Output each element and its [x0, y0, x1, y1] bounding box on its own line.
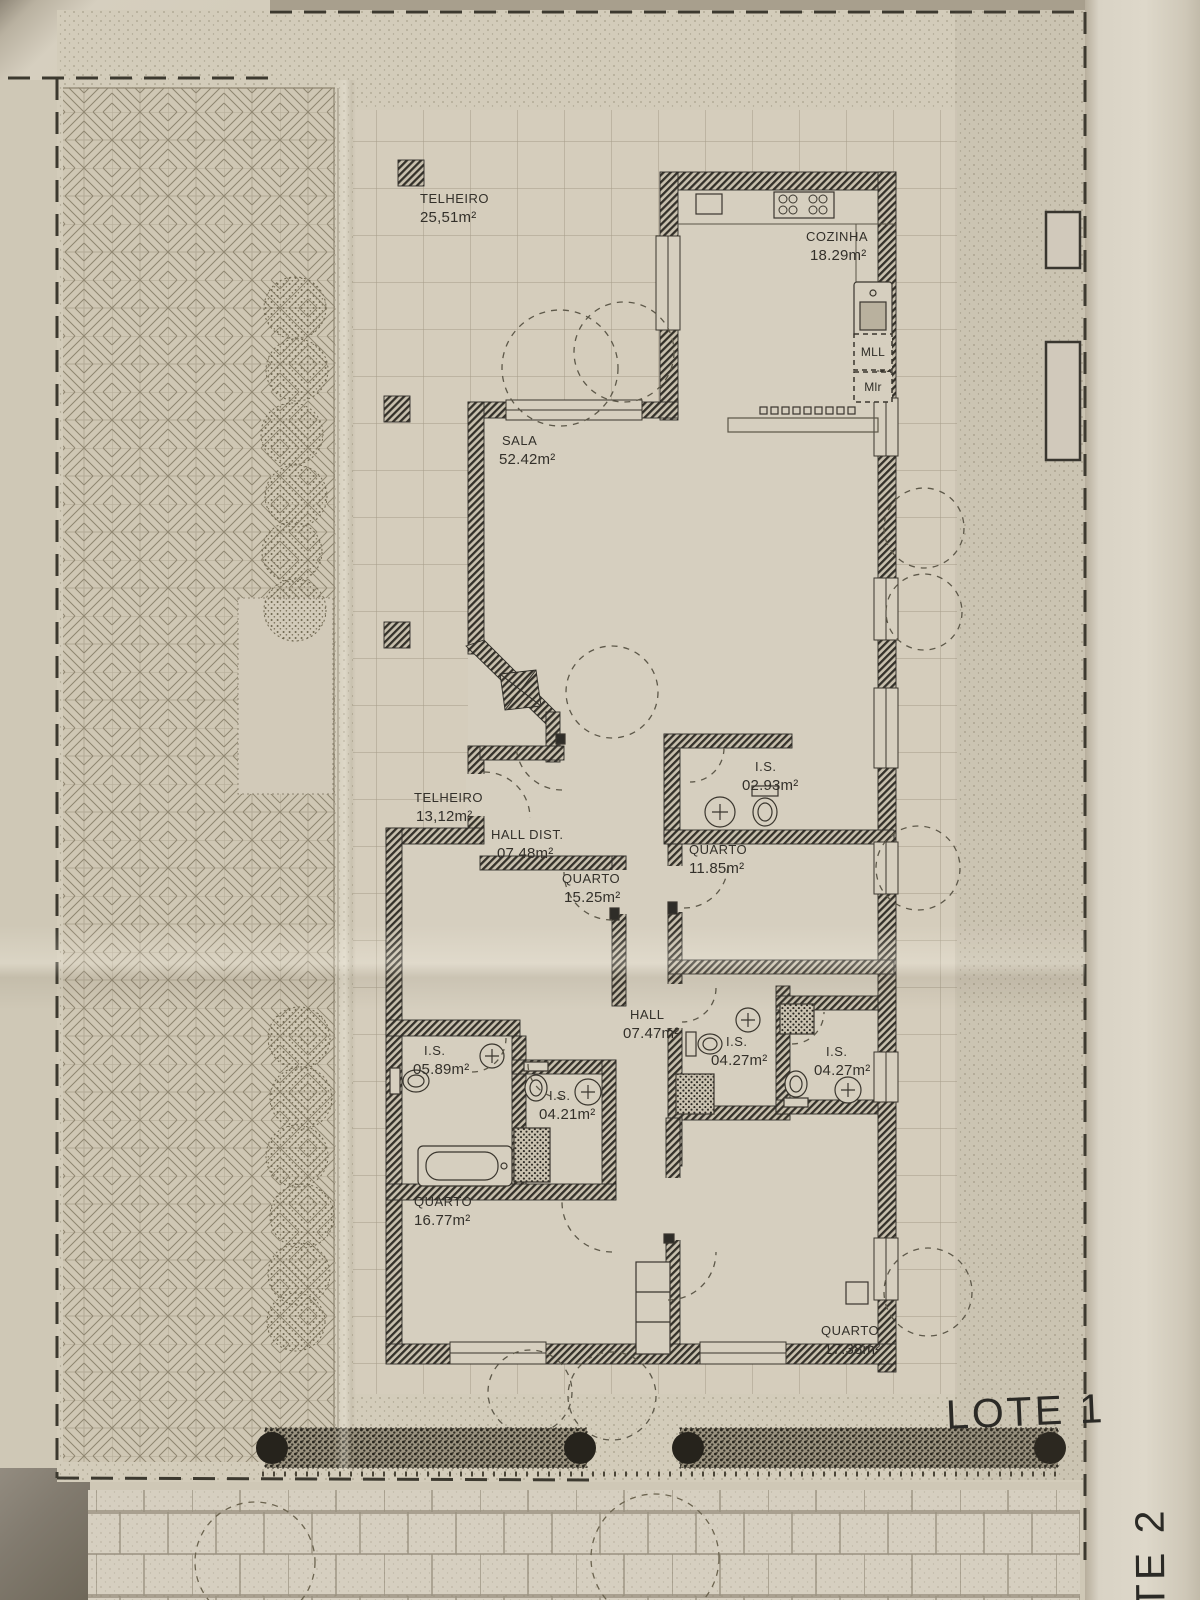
oven-icon: [696, 194, 722, 214]
neighbour-walls: [1046, 212, 1080, 460]
ground-layer: [57, 10, 1085, 1482]
toilet-icon: [524, 1062, 548, 1071]
room-label-sala: SALA 52.42m²: [499, 431, 555, 469]
hedges-layer: [256, 1428, 1066, 1474]
paper-fold-horizontal: [0, 925, 1085, 1010]
hob-icon: [774, 192, 834, 218]
room-label-quarto-1738: QUARTO 17.38m²: [821, 1321, 880, 1359]
room-label-is-0421: I.S. 04.21m²: [539, 1086, 595, 1124]
toilet-icon: [686, 1032, 696, 1056]
kitchen-sink-icon: [854, 282, 892, 336]
shower-icon: [676, 1074, 714, 1114]
walls-layer: [384, 160, 896, 1372]
washbasin-icon: [705, 797, 735, 827]
washbasin-icon: [480, 1044, 504, 1068]
pavement-layer: [88, 1490, 1080, 1600]
cabinet-dots-row: [760, 407, 855, 414]
trees-layer: [261, 277, 334, 1351]
lot2-label: LOTE 2: [1126, 1432, 1175, 1600]
room-label-is-0589: I.S. 05.89m²: [413, 1041, 469, 1079]
fireplace-icon: [500, 670, 541, 710]
kitchen-peninsula: [728, 418, 878, 432]
photo-top-edge: [270, 0, 1085, 10]
bedside-square: [846, 1282, 868, 1304]
room-label-cozinha: COZINHA 18.29m²: [806, 227, 868, 265]
windows-layer: [450, 236, 898, 1364]
toilet-icon: [753, 798, 777, 826]
toilet-icon: [784, 1098, 808, 1107]
lot1-label: LOTE 1: [945, 1384, 1127, 1439]
paper-fold-vertical: [334, 80, 356, 1470]
washbasin-icon: [736, 1008, 760, 1032]
room-label-is-0427a: I.S. 04.27m²: [711, 1032, 767, 1070]
bathtub-icon: [418, 1146, 512, 1186]
room-label-quarto-1677: QUARTO 16.77m²: [414, 1192, 472, 1230]
room-label-quarto-1525: QUARTO 15.25m²: [562, 869, 620, 907]
house-floor: [386, 172, 896, 1364]
toilet-icon: [390, 1068, 400, 1094]
room-label-telheiro-2: TELHEIRO 13,12m²: [414, 788, 483, 826]
room-label-telheiro-1: TELHEIRO 25,51m²: [420, 189, 489, 227]
fixtures-layer: [390, 192, 896, 1354]
room-label-hall: HALL 07.47m²: [623, 1005, 679, 1043]
photo-shading: [955, 10, 1085, 1480]
wardrobe-icon: [636, 1262, 670, 1354]
shower-icon: [514, 1128, 550, 1182]
floor-plan-photo: TELHEIRO 25,51m² COZINHA 18.29m² SALA 52…: [0, 0, 1200, 1600]
washer-label: Mlr: [854, 372, 892, 402]
adjacent-sheet-edge: [1085, 0, 1200, 1600]
room-label-is-0293: I.S. 02.93m²: [742, 757, 798, 795]
plan-drawing: [0, 0, 1200, 1600]
room-label-hall-dist: HALL DIST. 07.48m²: [491, 825, 563, 863]
photo-bottom-left-shadow: [0, 1468, 90, 1600]
dishwasher-label: MLL: [854, 334, 892, 370]
lot-boundary: [8, 12, 1085, 1560]
room-label-is-0427b: I.S. 04.27m²: [814, 1042, 870, 1080]
paper-corner-fold: [0, 0, 270, 80]
washbasin-icon: [835, 1077, 861, 1103]
fireplace-hatch: [500, 670, 541, 710]
room-label-quarto-1185: QUARTO 11.85m²: [689, 840, 747, 878]
